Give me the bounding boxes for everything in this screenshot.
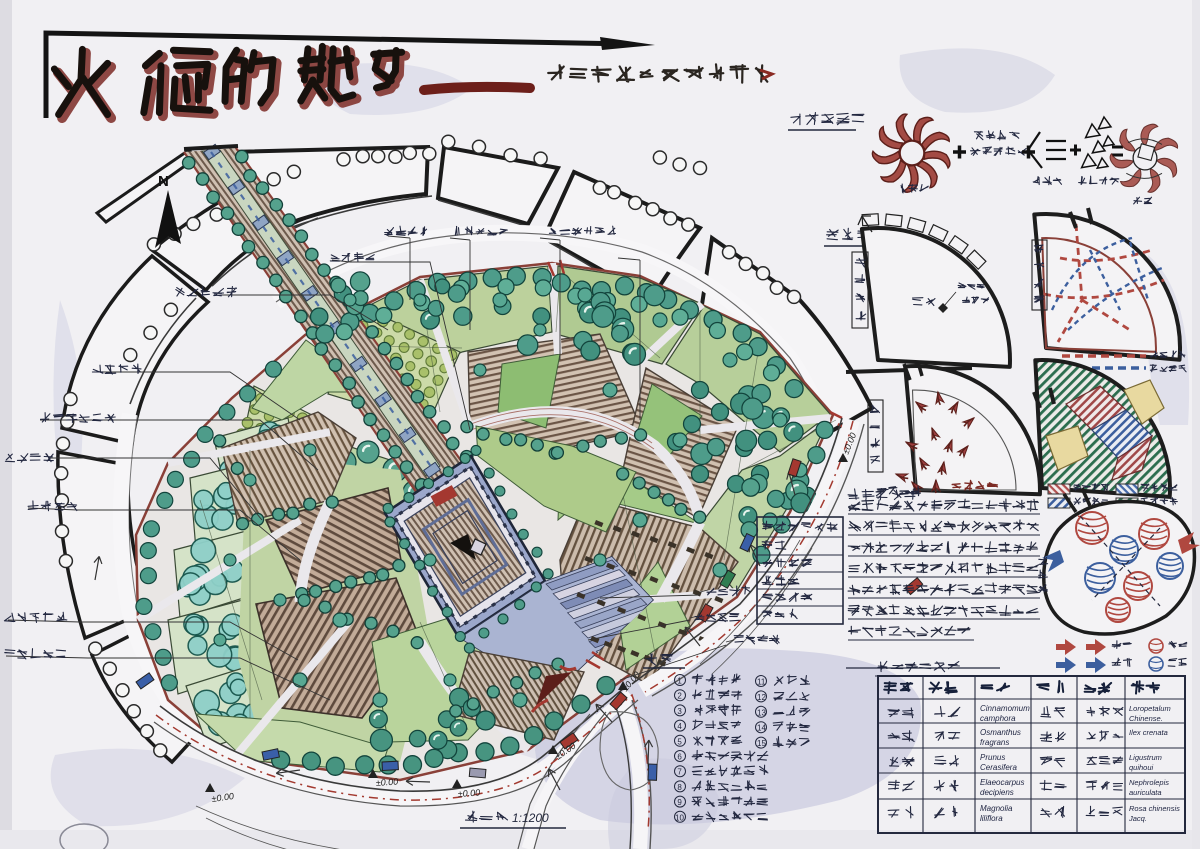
svg-text:7: 7 xyxy=(677,768,682,777)
svg-text:camphora: camphora xyxy=(980,714,1016,723)
svg-text:Osmanthus: Osmanthus xyxy=(980,728,1021,737)
svg-text:±0.00: ±0.00 xyxy=(375,776,398,788)
svg-text:Elaeocarpus: Elaeocarpus xyxy=(980,778,1024,787)
svg-text:decipiens: decipiens xyxy=(980,788,1014,797)
svg-text:liliflora: liliflora xyxy=(980,814,1003,823)
svg-text:3: 3 xyxy=(677,707,682,716)
svg-text:Ligustrum: Ligustrum xyxy=(1129,753,1162,762)
svg-text:Magnolia: Magnolia xyxy=(980,804,1013,813)
svg-text:2: 2 xyxy=(677,692,682,701)
svg-text:Rosa chinensis: Rosa chinensis xyxy=(1129,804,1180,813)
svg-text:Jacq.: Jacq. xyxy=(1128,814,1147,823)
svg-text:6: 6 xyxy=(677,753,682,762)
svg-text:Prunus: Prunus xyxy=(980,753,1005,762)
svg-text:quihoui: quihoui xyxy=(1129,763,1154,772)
svg-text:5: 5 xyxy=(677,737,682,746)
svg-text:Cerasifera: Cerasifera xyxy=(980,763,1017,772)
svg-text:1:1200: 1:1200 xyxy=(512,811,549,825)
svg-text:N: N xyxy=(158,173,169,190)
svg-text:8: 8 xyxy=(677,783,682,792)
svg-text:9: 9 xyxy=(677,798,682,807)
svg-text:Chinense.: Chinense. xyxy=(1129,714,1163,723)
svg-text:12: 12 xyxy=(757,693,766,702)
svg-text:Loropetalum: Loropetalum xyxy=(1129,704,1171,713)
svg-text:1: 1 xyxy=(677,677,682,686)
svg-text:±0.00: ±0.00 xyxy=(457,787,480,799)
svg-text:4: 4 xyxy=(677,722,682,731)
svg-text:fragrans: fragrans xyxy=(980,738,1009,747)
svg-text:14: 14 xyxy=(757,724,766,733)
svg-text:Nephrolepis: Nephrolepis xyxy=(1129,778,1169,787)
svg-text:13: 13 xyxy=(757,708,766,717)
svg-text:11: 11 xyxy=(757,678,766,687)
svg-text:auriculata: auriculata xyxy=(1129,788,1162,797)
svg-text:Ilex crenata: Ilex crenata xyxy=(1129,728,1168,737)
svg-text:10: 10 xyxy=(675,813,684,822)
svg-text:15: 15 xyxy=(757,739,766,748)
svg-text:Cinnamomum: Cinnamomum xyxy=(980,704,1030,713)
